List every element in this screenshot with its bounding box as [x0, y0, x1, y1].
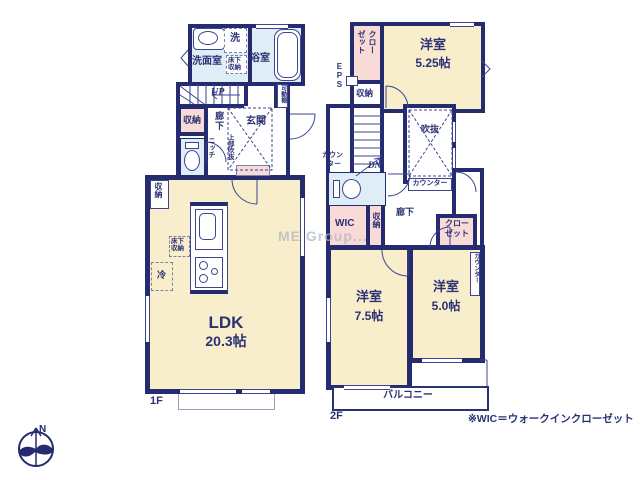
corridor-2f-label: 廊下	[396, 207, 414, 217]
room-50-size: 5.0帖	[432, 300, 461, 313]
counter-e-label: カウンター	[472, 253, 479, 283]
storage-mid-2f-label: 収納	[371, 212, 380, 228]
bathroom-window	[256, 24, 288, 29]
closet-mid-label-1: クロー	[445, 220, 469, 229]
room-50-window-s	[422, 358, 462, 363]
counter-wc-label-1: カウン	[322, 152, 343, 160]
closet-nw-label-1: クロー	[367, 30, 376, 54]
storage-hall-1f-label: 収納	[183, 115, 201, 125]
stove-burner-1	[199, 261, 208, 270]
toilet-tank-1f	[185, 142, 199, 149]
underfloor-storage-ldk-label: 床下収納	[171, 238, 189, 253]
entrance-label: 玄関	[246, 116, 266, 127]
underfloor-storage-washroom-label: 床下収納	[228, 57, 246, 72]
ldk-window-s1	[180, 389, 236, 394]
floor1-label: 1F	[150, 395, 163, 407]
ldk-window-w	[145, 296, 150, 342]
void-label: 吹抜	[421, 124, 439, 134]
void-window-1	[452, 122, 456, 142]
movable-shelf-label: 可動棚	[279, 85, 286, 103]
floor2-label: 2F	[330, 410, 343, 422]
closet-mid-label-2: ゼット	[445, 230, 469, 239]
stove-burner-3	[211, 268, 218, 275]
corridor-1f-label: 廊下	[214, 111, 224, 131]
fridge-label: 冷	[157, 270, 166, 280]
storage-ldk-label: 収納	[153, 182, 162, 198]
washroom-label: 洗面室	[192, 56, 222, 67]
ldk-name-label: LDK	[209, 313, 244, 332]
void-above-label: 上部吹抜	[226, 134, 233, 160]
room-525-window-n	[450, 22, 474, 27]
toilet-tank-2f	[333, 180, 340, 198]
room-525-size: 5.25帖	[415, 57, 450, 70]
ldk-window-e	[300, 198, 305, 256]
compass-icon: N	[6, 416, 66, 476]
eps-label: EPS	[334, 62, 343, 89]
room-50-name: 洋室	[433, 280, 459, 295]
room-75-window-w	[326, 298, 331, 342]
terrace-outline	[178, 392, 275, 410]
wic-note: ※WIC＝ウォークインクローゼット	[468, 414, 634, 426]
vanity-bowl	[198, 31, 218, 45]
storage-n-2f-label: 収納	[356, 89, 373, 99]
genkan-step	[236, 165, 270, 176]
niche-label: ニッチ	[207, 137, 215, 158]
room-75-name: 洋室	[356, 290, 382, 305]
watermark: ME Group...	[278, 228, 368, 244]
stairs-dn-label: DN	[368, 160, 381, 170]
void-window-2	[452, 148, 456, 168]
closet-nw-label-2: ゼット	[356, 30, 365, 54]
toilet-bowl-1f	[184, 150, 200, 171]
counter-wc-label-2: ター	[327, 161, 341, 169]
toilet-bowl-2f	[342, 179, 361, 199]
washer-label: 洗	[230, 33, 240, 44]
room-525-name: 洋室	[420, 38, 446, 53]
stairs-up-label: UP	[211, 87, 224, 98]
floorplan-canvas: 洗 洗面室 床下収納 浴室 UP 可動棚 収納 廊下 ニッチ 玄関 上部吹抜 収…	[0, 0, 640, 480]
compass-n-label: N	[39, 424, 46, 435]
balcony-label: バルコニー	[383, 390, 433, 401]
eps-shaft	[346, 76, 358, 86]
void-block	[403, 104, 456, 184]
ldk-window-s2	[242, 389, 270, 394]
kitchen-sink-bowl	[199, 213, 216, 240]
bathroom-label: 浴室	[250, 53, 270, 64]
bathtub-inner	[277, 32, 298, 78]
room-75-size: 7.5帖	[355, 310, 384, 323]
ldk-size-label: 20.3帖	[205, 334, 246, 350]
stove-burner-2	[199, 274, 208, 283]
counter-under-void-label: カウンター	[413, 180, 448, 188]
